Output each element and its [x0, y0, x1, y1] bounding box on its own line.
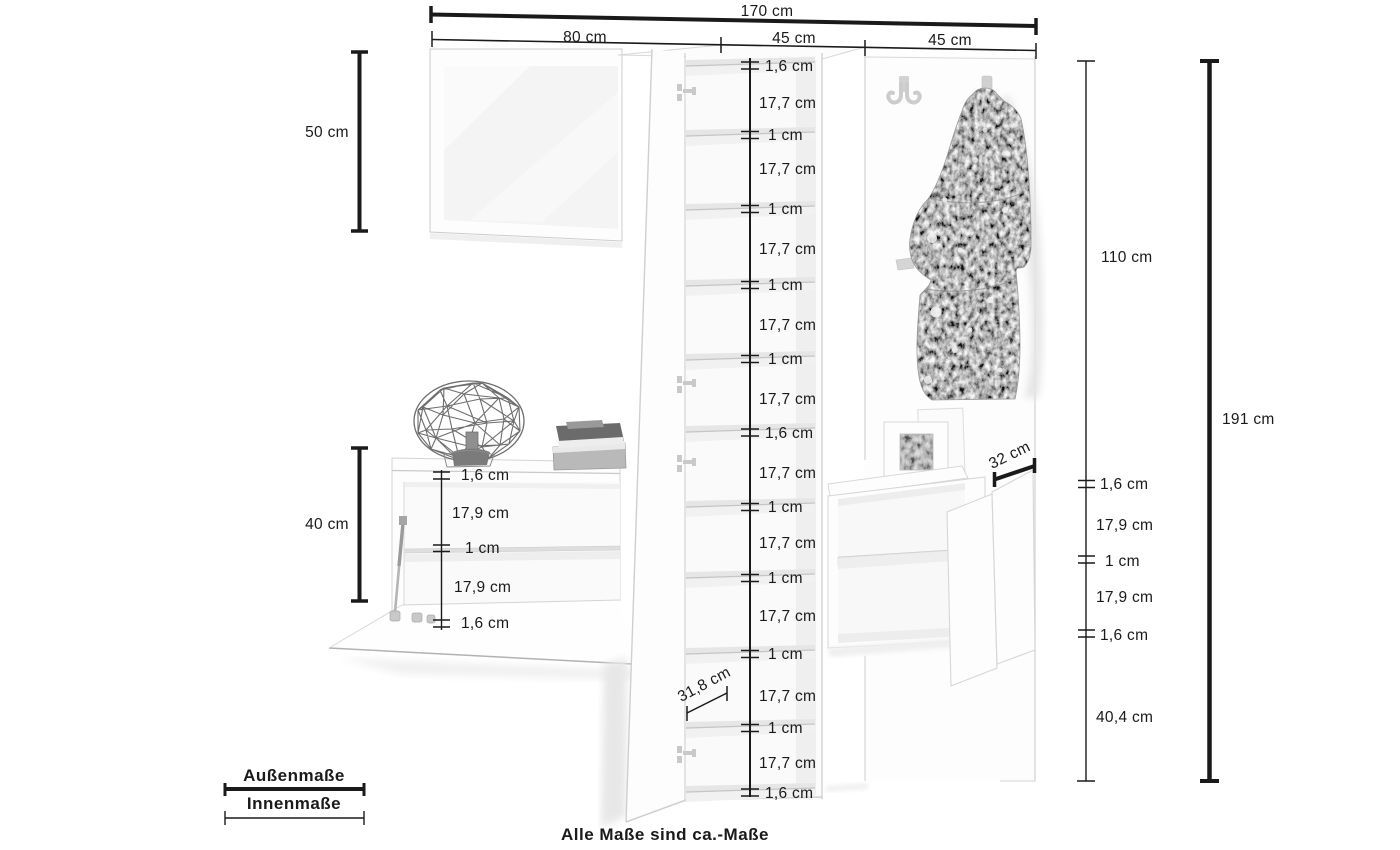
svg-text:1 cm: 1 cm: [768, 201, 803, 218]
svg-text:Außenmaße: Außenmaße: [243, 766, 345, 785]
svg-text:1 cm: 1 cm: [1105, 553, 1140, 570]
svg-text:80 cm: 80 cm: [563, 29, 607, 46]
svg-text:1 cm: 1 cm: [768, 351, 803, 368]
svg-text:17,9 cm: 17,9 cm: [1096, 589, 1153, 606]
svg-text:17,7 cm: 17,7 cm: [759, 161, 816, 178]
svg-text:17,7 cm: 17,7 cm: [759, 391, 816, 408]
svg-text:Innenmaße: Innenmaße: [247, 794, 341, 813]
svg-text:17,7 cm: 17,7 cm: [759, 95, 816, 112]
svg-text:1,6 cm: 1,6 cm: [1100, 476, 1148, 493]
svg-text:1,6 cm: 1,6 cm: [1100, 627, 1148, 644]
svg-text:170 cm: 170 cm: [741, 3, 794, 20]
svg-text:45 cm: 45 cm: [928, 32, 972, 49]
svg-text:1 cm: 1 cm: [768, 499, 803, 516]
svg-text:1 cm: 1 cm: [768, 127, 803, 144]
svg-text:17,7 cm: 17,7 cm: [759, 755, 816, 772]
svg-text:17,7 cm: 17,7 cm: [759, 465, 816, 482]
svg-text:17,7 cm: 17,7 cm: [759, 317, 816, 334]
svg-text:1,6 cm: 1,6 cm: [765, 425, 813, 442]
svg-text:17,9 cm: 17,9 cm: [454, 579, 511, 596]
svg-text:17,7 cm: 17,7 cm: [759, 241, 816, 258]
svg-text:1 cm: 1 cm: [768, 570, 803, 587]
svg-text:1,6 cm: 1,6 cm: [461, 467, 509, 484]
svg-text:40 cm: 40 cm: [305, 516, 349, 533]
svg-text:17,9 cm: 17,9 cm: [452, 505, 509, 522]
svg-text:50 cm: 50 cm: [305, 124, 349, 141]
svg-text:1,6 cm: 1,6 cm: [461, 615, 509, 632]
svg-text:17,7 cm: 17,7 cm: [759, 688, 816, 705]
svg-text:1 cm: 1 cm: [768, 720, 803, 737]
svg-text:1 cm: 1 cm: [768, 646, 803, 663]
svg-text:1,6 cm: 1,6 cm: [765, 58, 813, 75]
svg-text:Alle Maße sind ca.-Maße: Alle Maße sind ca.-Maße: [561, 825, 769, 844]
svg-text:17,7 cm: 17,7 cm: [759, 608, 816, 625]
svg-text:191 cm: 191 cm: [1222, 411, 1275, 428]
svg-text:40,4 cm: 40,4 cm: [1096, 709, 1153, 726]
svg-text:1,6 cm: 1,6 cm: [765, 785, 813, 802]
svg-text:110 cm: 110 cm: [1101, 249, 1152, 266]
svg-text:1 cm: 1 cm: [768, 277, 803, 294]
svg-text:45 cm: 45 cm: [772, 30, 816, 47]
svg-text:17,9 cm: 17,9 cm: [1096, 517, 1153, 534]
svg-text:17,7 cm: 17,7 cm: [759, 535, 816, 552]
svg-text:1 cm: 1 cm: [465, 540, 500, 557]
